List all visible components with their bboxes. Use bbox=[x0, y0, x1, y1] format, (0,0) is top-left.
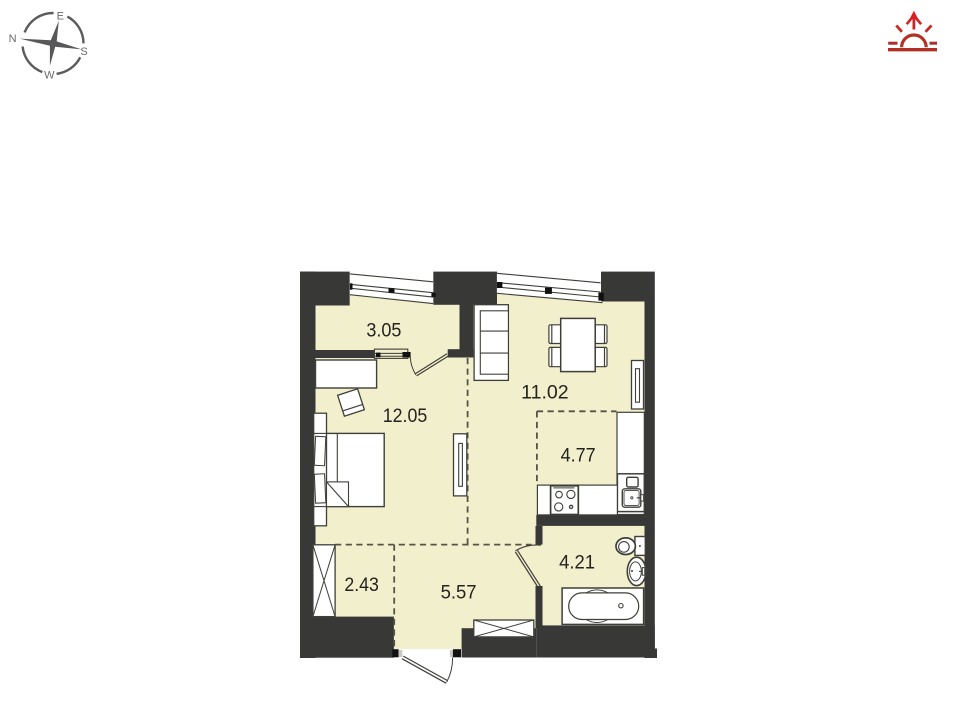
svg-text:N: N bbox=[9, 33, 17, 45]
svg-text:W: W bbox=[44, 70, 55, 82]
svg-text:4.21: 4.21 bbox=[559, 551, 595, 573]
svg-text:12.05: 12.05 bbox=[383, 405, 428, 427]
svg-text:4.77: 4.77 bbox=[561, 444, 596, 466]
svg-text:11.02: 11.02 bbox=[521, 382, 569, 404]
svg-text:2.43: 2.43 bbox=[344, 574, 379, 596]
svg-text:3.05: 3.05 bbox=[366, 319, 401, 341]
svg-text:S: S bbox=[80, 46, 87, 58]
svg-text:E: E bbox=[57, 11, 64, 23]
svg-text:5.57: 5.57 bbox=[441, 582, 477, 604]
